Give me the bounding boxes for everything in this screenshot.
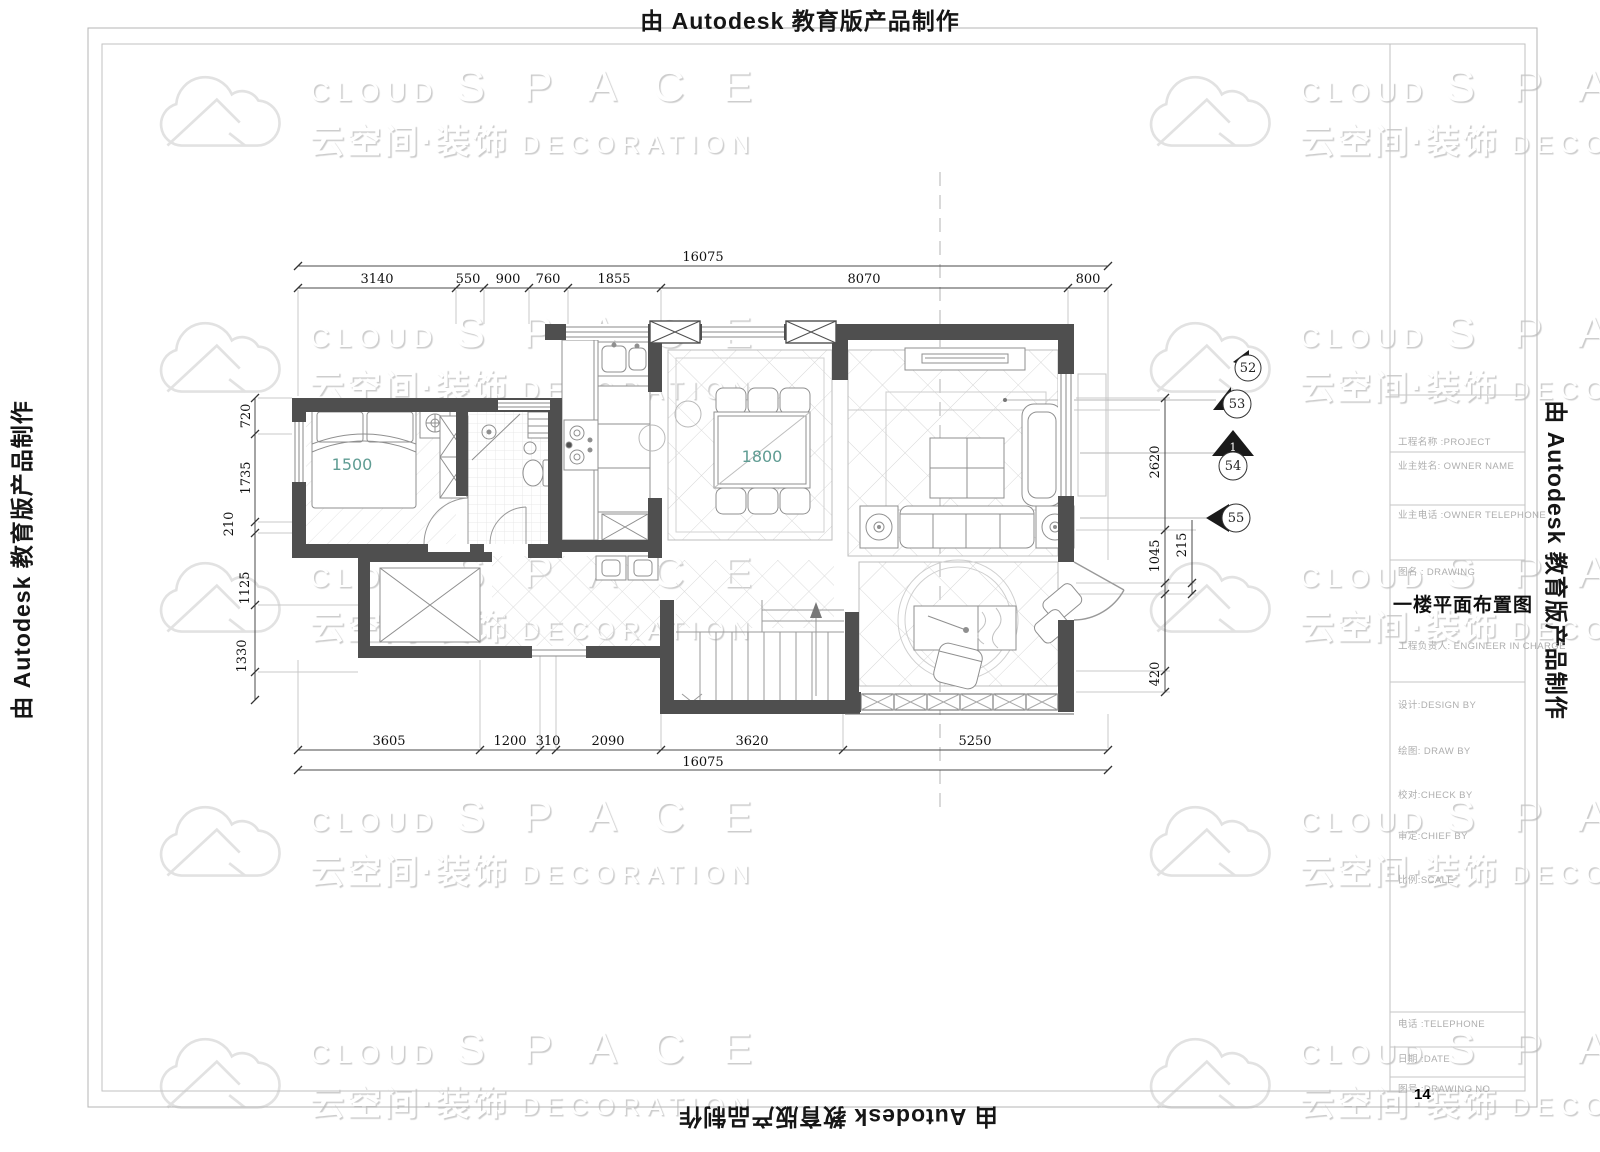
tb-check-label: 校对:CHECK BY — [1398, 787, 1473, 801]
dim: 210 — [222, 512, 237, 537]
dim: 1045 — [1148, 539, 1163, 572]
tb-project-label: 工程名称 :PROJECT — [1398, 434, 1491, 448]
chaise-chair — [1022, 404, 1062, 506]
marker-52: 52 — [1233, 350, 1261, 381]
dim: 550 — [456, 272, 481, 287]
drawing-number: 14 — [1414, 1086, 1431, 1103]
sofa — [860, 506, 1074, 548]
dim: 720 — [239, 404, 254, 429]
elevation-markers: 52 53 1 54 55 — [1206, 350, 1261, 532]
storage-shaft — [380, 568, 480, 642]
dim: 1200 — [493, 734, 526, 749]
bed-size-label: 1500 — [332, 455, 373, 474]
dim: 1125 — [238, 571, 253, 604]
tb-draw-label: 绘图: DRAW BY — [1398, 743, 1471, 757]
dim: 800 — [1076, 272, 1101, 287]
tb-scale-label: 比例:SCALE — [1398, 872, 1454, 886]
tb-engineer-label: 工程负责人: ENGINEER IN CHARGE — [1398, 638, 1566, 652]
stove — [564, 420, 598, 470]
marker-54: 1 54 — [1212, 430, 1254, 480]
dim: 215 — [1175, 533, 1190, 558]
tv-cabinet — [905, 348, 1025, 370]
dim-bottom-total: 16075 — [682, 755, 723, 770]
dim: 8070 — [847, 272, 880, 287]
dim: 2090 — [591, 734, 624, 749]
svg-text:52: 52 — [1240, 361, 1257, 376]
title-block-lines — [1390, 395, 1525, 1077]
marker-53: 53 — [1213, 387, 1251, 418]
desk — [914, 606, 1016, 650]
dim: 3605 — [372, 734, 405, 749]
dim: 760 — [536, 272, 561, 287]
tb-date-label: 日期 :DATE — [1398, 1051, 1450, 1065]
table-size-label: 1800 — [742, 447, 783, 466]
floor-plan-canvas: 16075 3140 550 900 760 1855 8070 800 360… — [0, 0, 1600, 1152]
coffee-table — [930, 438, 1004, 498]
tb-drawing-label: 图名 : DRAWING — [1398, 564, 1475, 578]
svg-text:55: 55 — [1228, 511, 1245, 526]
tb-owner-tel-label: 业主电话 :OWNER TELEPHONE — [1398, 507, 1546, 521]
svg-text:53: 53 — [1229, 397, 1246, 412]
drawing-title: 一楼平面布置图 — [1393, 590, 1533, 617]
tb-telephone-label: 电话 :TELEPHONE — [1398, 1016, 1485, 1030]
drawing-sheet: CLOUDS P A C E 云空间·装饰DECORATION CLOUDS P… — [0, 0, 1600, 1152]
autodesk-education-banner-left: 由 Autodesk 教育版产品制作 — [3, 400, 37, 720]
dim: 1735 — [239, 461, 254, 494]
dim-top-total: 16075 — [682, 250, 723, 265]
autodesk-education-banner-bottom: 由 Autodesk 教育版产品制作 — [678, 1102, 998, 1136]
dim: 5250 — [958, 734, 991, 749]
dim: 3620 — [735, 734, 768, 749]
tb-owner-name-label: 业主姓名: OWNER NAME — [1398, 458, 1514, 472]
dim: 2620 — [1148, 445, 1163, 478]
dim: 420 — [1148, 662, 1163, 687]
dim: 1330 — [235, 639, 250, 672]
dim: 3140 — [360, 272, 393, 287]
autodesk-education-banner-right: 由 Autodesk 教育版产品制作 — [1541, 400, 1575, 720]
autodesk-education-banner-top: 由 Autodesk 教育版产品制作 — [640, 2, 960, 36]
window-band — [845, 694, 1074, 714]
svg-text:54: 54 — [1225, 459, 1242, 474]
exterior-ledge — [1078, 374, 1106, 496]
tb-design-label: 设计:DESIGN BY — [1398, 697, 1476, 711]
marker-55: 55 — [1206, 504, 1250, 532]
tb-chief-label: 审定:CHIEF BY — [1398, 828, 1468, 842]
dim: 900 — [496, 272, 521, 287]
dim: 1855 — [597, 272, 630, 287]
tb-drawing-no-label: 图号 :DRAWING NO — [1398, 1081, 1490, 1095]
dim: 310 — [536, 734, 561, 749]
